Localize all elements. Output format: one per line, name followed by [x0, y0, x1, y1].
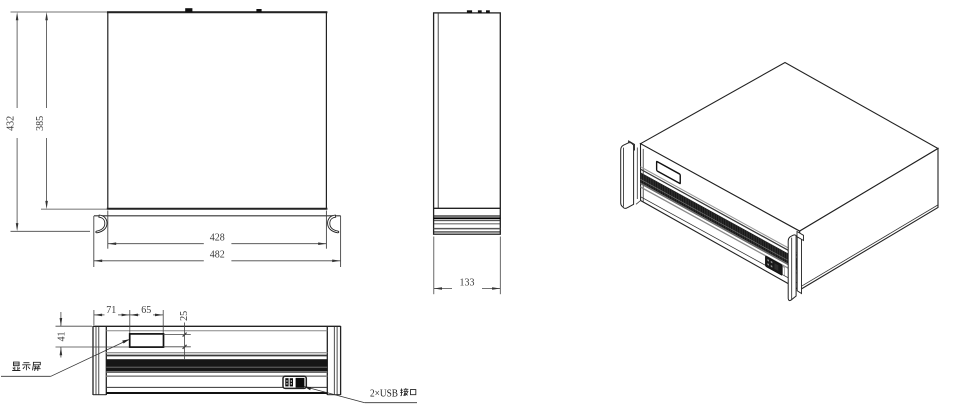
svg-text:65: 65 — [141, 305, 151, 316]
svg-text:482: 482 — [210, 250, 225, 261]
svg-text:41: 41 — [57, 332, 68, 342]
svg-text:133: 133 — [460, 277, 475, 288]
svg-text:428: 428 — [210, 232, 225, 243]
svg-text:71: 71 — [106, 305, 116, 316]
svg-text:385: 385 — [35, 116, 46, 131]
svg-text:2×USB: 2×USB — [370, 388, 398, 399]
svg-text:25: 25 — [179, 311, 190, 321]
svg-text:432: 432 — [6, 116, 17, 131]
